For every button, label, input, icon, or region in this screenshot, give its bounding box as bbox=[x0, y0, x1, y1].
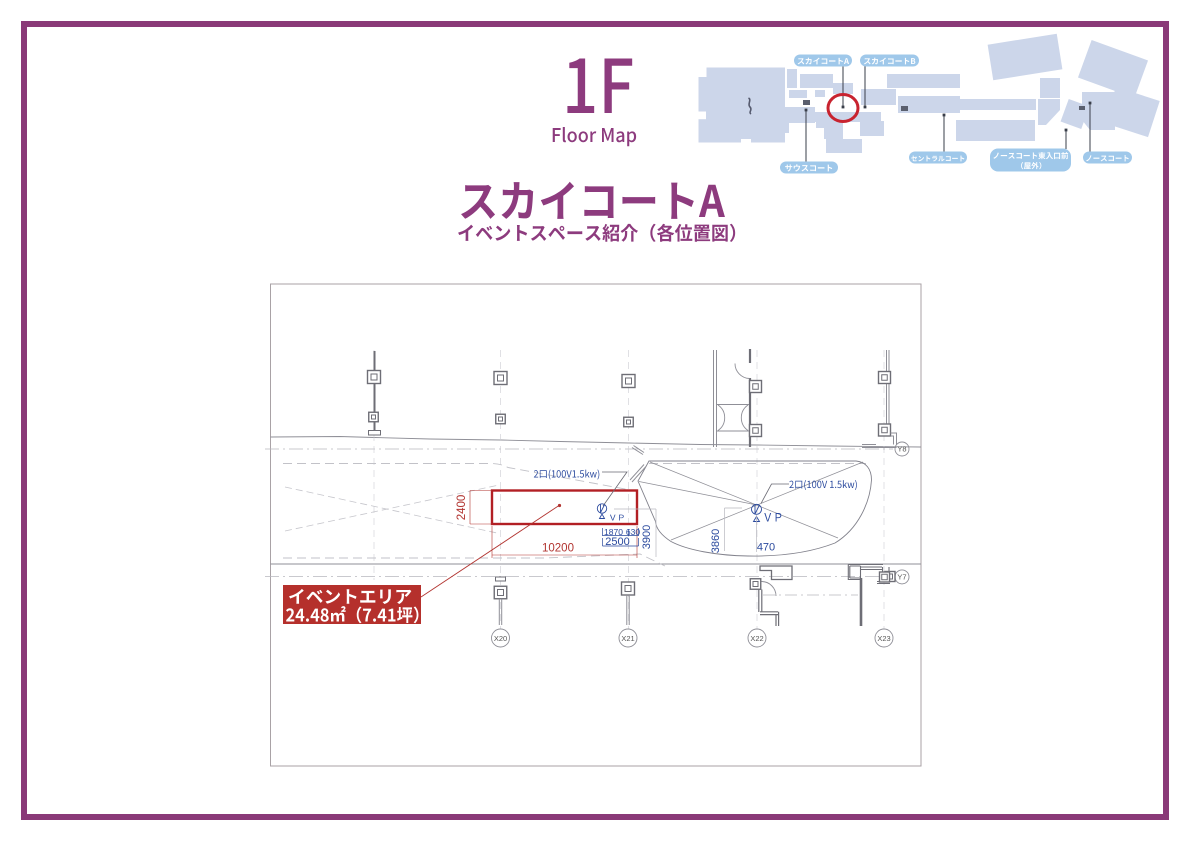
svg-text:10200: 10200 bbox=[542, 543, 574, 555]
svg-text:X20: X20 bbox=[494, 634, 507, 643]
svg-text:X21: X21 bbox=[621, 634, 634, 643]
svg-text:470: 470 bbox=[757, 542, 775, 554]
svg-text:X22: X22 bbox=[750, 634, 763, 643]
svg-text:3860: 3860 bbox=[710, 529, 722, 553]
svg-text:3900: 3900 bbox=[641, 525, 653, 549]
svg-text:2400: 2400 bbox=[456, 495, 468, 521]
svg-text:Y7: Y7 bbox=[897, 573, 906, 582]
svg-text:X23: X23 bbox=[877, 634, 890, 643]
svg-text:Y8: Y8 bbox=[897, 445, 906, 454]
